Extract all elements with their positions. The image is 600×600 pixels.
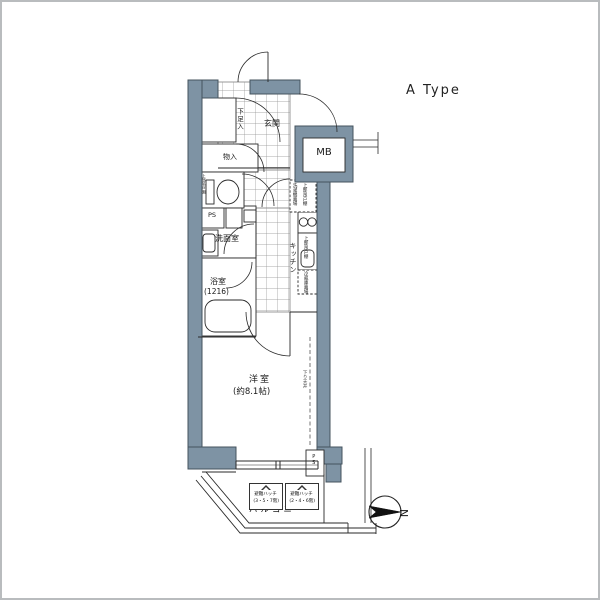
washroom-label: 洗面室 xyxy=(215,234,239,243)
stove-burner-icon xyxy=(308,218,316,226)
pipe-space-label: PS xyxy=(200,212,224,219)
meter-box-label: MB xyxy=(303,147,345,159)
bathroom-label: 浴室 xyxy=(210,277,226,286)
storage-label: 物入 xyxy=(223,153,237,161)
hatch-arrow-icon xyxy=(261,485,271,490)
kitchen-label: キッチン xyxy=(289,242,297,274)
site-boundary-lines xyxy=(353,132,378,523)
bathtub-icon xyxy=(205,300,251,332)
sink-upper-cabinet-label: 上部吊戸棚 xyxy=(303,236,308,259)
pipe-space-2-label: PS xyxy=(310,454,316,466)
entry-door-arc xyxy=(238,52,268,82)
hatch-a-label: 避難ハッチ xyxy=(255,490,278,496)
washbasin-box xyxy=(226,208,242,228)
laundry-upper-cabinet-label: 上部吊戸棚 xyxy=(302,183,307,206)
stove-burner-icon xyxy=(299,218,307,226)
floorplan-canvas: N A Type 玄関 下足入 物入 上部吊戸棚 PS 洗面室 浴室 (1216… xyxy=(0,0,600,600)
western-room-label: 洋室 xyxy=(249,375,271,385)
evacuation-hatch-b: 避難ハッチ (2・4・6階) xyxy=(285,483,319,510)
toilet-bowl-icon xyxy=(217,180,239,204)
compass-north-label: N xyxy=(397,509,410,517)
fridge-space-label: 冷蔵庫置場 xyxy=(303,271,308,294)
evacuation-hatch-a: 避難ハッチ (3・5・7階) xyxy=(249,483,283,510)
hatch-a-floors: (3・5・7階) xyxy=(253,497,279,503)
dropped-ceiling-label: 下り天井 xyxy=(302,370,307,388)
toilet-upper-shelf-label: 上部吊戸棚 xyxy=(201,174,206,194)
western-room-size-label: (約8.1帖) xyxy=(233,388,270,398)
plan-type-title: A Type xyxy=(406,84,461,99)
shoe-cabinet-box xyxy=(202,98,236,142)
laundry-space-label: 洗濯機置場 xyxy=(292,183,297,206)
compass-icon: N xyxy=(369,496,410,528)
hatch-b-label: 避難ハッチ xyxy=(291,490,314,496)
bathroom-size-label: (1216) xyxy=(204,288,229,297)
shoe-cabinet-label: 下足入 xyxy=(235,108,242,131)
hatch-b-floors: (2・4・6階) xyxy=(289,497,315,503)
remote-panel-box xyxy=(244,210,256,222)
entrance-label: 玄関 xyxy=(264,119,280,128)
hatch-arrow-icon xyxy=(297,485,307,490)
toilet-tank-icon xyxy=(206,180,214,204)
washing-machine-inner xyxy=(203,234,215,252)
